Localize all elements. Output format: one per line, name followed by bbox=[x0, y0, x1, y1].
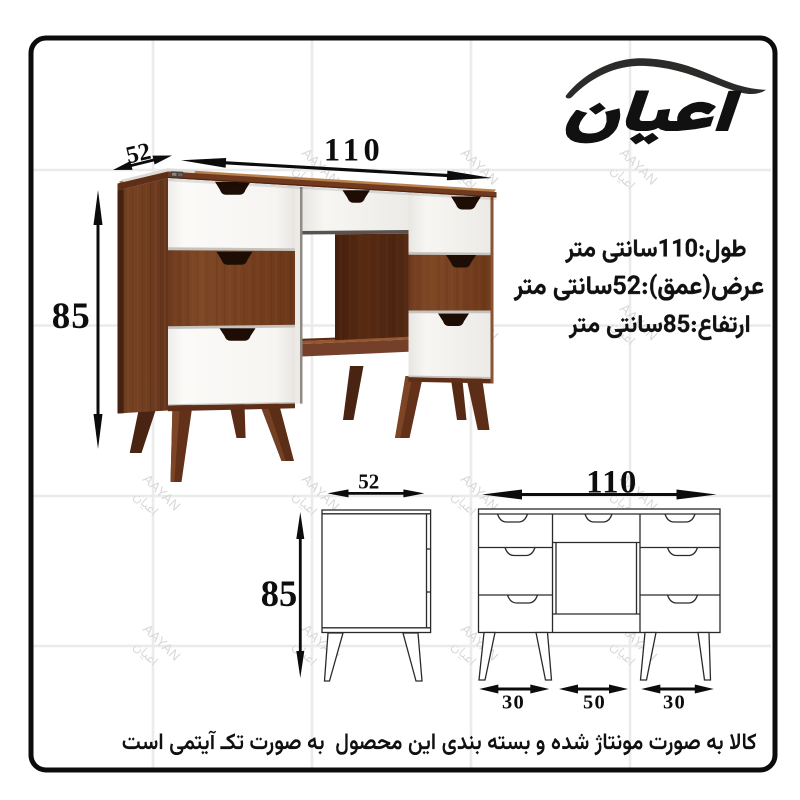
svg-text:30: 30 bbox=[502, 692, 525, 714]
svg-text:85: 85 bbox=[52, 296, 91, 337]
svg-text:52: 52 bbox=[358, 470, 379, 494]
svg-text:85: 85 bbox=[261, 573, 298, 614]
svg-text:110: 110 bbox=[586, 465, 637, 501]
svg-text:110: 110 bbox=[324, 133, 384, 169]
svg-text:30: 30 bbox=[663, 692, 686, 714]
svg-text:50: 50 bbox=[583, 692, 606, 714]
